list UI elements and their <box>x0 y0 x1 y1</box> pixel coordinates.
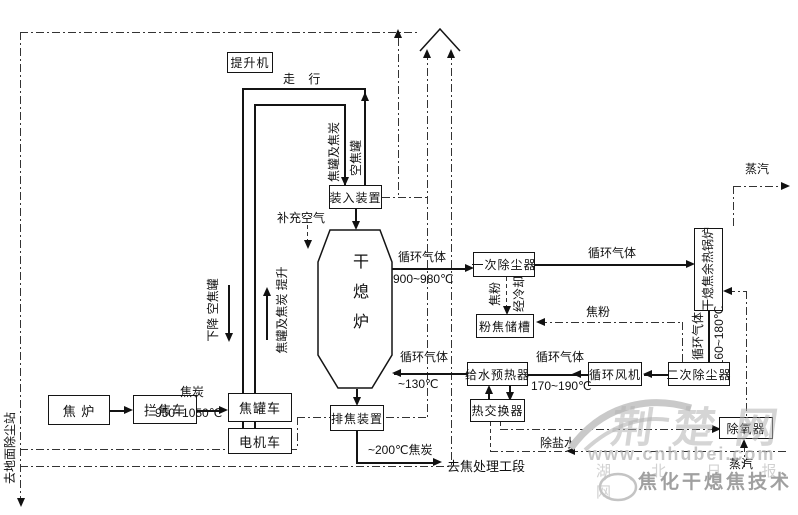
tank-and-coke-label: 焦罐及焦炭 <box>327 120 341 184</box>
rail-right-outer <box>364 88 366 185</box>
dry-quenching-furnace-label: 干熄炉 <box>346 253 370 363</box>
coke-label: 焦炭 <box>180 383 204 400</box>
coke-powder-v-label: 焦粉 <box>488 280 502 308</box>
coke-tank-car-box: 焦罐车 <box>228 393 292 422</box>
discharge-dust-line-left-v <box>297 417 298 449</box>
coke-discharge-device-label: 排焦装置 <box>331 410 383 427</box>
travel-rail-outer <box>242 88 365 90</box>
coke-tank-car-label: 焦罐车 <box>239 398 281 417</box>
arrow-up-stack-right <box>447 49 455 58</box>
steam-out-v <box>733 186 734 228</box>
arrow-toward-preheater <box>572 370 581 378</box>
charging-device-label: 装入装置 <box>330 189 382 206</box>
supplementary-air-label: 补充空气 <box>277 209 325 226</box>
coke-powder-h-label: 焦粉 <box>586 303 610 320</box>
feedwater-preheater-box: 给水预热器 <box>467 362 528 386</box>
stack-line-right <box>451 52 452 466</box>
discharge-dust-line-left-h <box>297 417 330 418</box>
empty-tank-label: 空焦罐 <box>349 138 363 178</box>
preheater-to-furnace-line <box>394 373 467 375</box>
boundary-line-top <box>20 32 420 33</box>
circulating-gas-label-5: 循环气体 <box>400 348 448 365</box>
demin-water-riser <box>490 422 491 451</box>
furnace-to-primary-line <box>392 268 469 270</box>
dust-line-bottom-long <box>20 466 451 467</box>
primary-to-boiler-line <box>535 264 690 266</box>
descend-indicator-line <box>228 285 230 335</box>
coke-oven-box: 焦 炉 <box>48 395 110 425</box>
travel-rail-inner <box>254 104 345 106</box>
watermark-caption: 焦化干熄焦技术 <box>638 467 792 494</box>
circulation-fan-box: 循环风机 <box>588 362 642 386</box>
feedwater-preheater-label: 给水预热器 <box>465 366 530 383</box>
lift-indicator-arrow <box>263 287 271 296</box>
arrow-up-empty-tank <box>361 92 369 101</box>
charging-device-box: 装入装置 <box>329 185 382 209</box>
charging-dust-line-v <box>398 38 399 197</box>
steam-out-h <box>733 186 785 187</box>
descend-empty-tank-label: 下降 空焦罐 <box>206 270 220 350</box>
after-cooling-label: 经冷却 <box>512 274 526 314</box>
coke-temp-label: 950~1050℃ <box>155 406 222 420</box>
rail-left-inner <box>254 104 256 393</box>
to-ground-dust-station-label: 去地面除尘站 <box>3 408 17 488</box>
electric-locomotive-label: 电机车 <box>239 432 281 451</box>
coke-oven-label: 焦 炉 <box>63 401 96 420</box>
primary-dust-collector-label: 一次除尘器 <box>472 256 537 273</box>
boundary-line-left <box>20 32 21 500</box>
arrow-steam-out <box>781 182 790 190</box>
lift-tank-coke-label: 焦罐及焦炭 提升 <box>275 258 289 362</box>
hoist-label: 提升机 <box>230 54 269 71</box>
powder-from-secondary-h <box>539 322 682 323</box>
steam-top-label: 蒸汽 <box>745 160 769 177</box>
arrow-up-stack-left <box>423 49 431 58</box>
hoist-box: 提升机 <box>227 52 273 73</box>
charging-dust-line-h <box>382 197 427 198</box>
arrow-to-guide-car <box>124 406 133 414</box>
supplementary-air-arrow <box>304 240 312 249</box>
circulating-gas-label-2: 循环气体 <box>588 244 636 261</box>
gas-temp-return-label: ~130℃ <box>398 377 439 391</box>
cdq-process-flow-diagram: 去地面除尘站 焦 炉 拦焦车 焦炭 950~1050℃ 焦罐车 电机车 提升机 … <box>0 0 798 515</box>
circulating-gas-label-4: 循环气体 <box>536 348 584 365</box>
electric-locomotive-box: 电机车 <box>228 428 292 454</box>
arrow-powder-into-tank <box>536 318 545 326</box>
travel-label: 走 行 <box>283 70 325 87</box>
discharge-dust-line-right <box>386 417 427 418</box>
heat-exchanger-label: 热交换器 <box>471 402 523 419</box>
coke-out-label: ~200℃焦炭 <box>368 441 433 458</box>
arrow-to-coke-processing <box>433 458 442 466</box>
coke-discharge-device-box: 排焦装置 <box>330 405 384 431</box>
watermark-logo-icon <box>596 468 640 504</box>
descend-indicator-arrow <box>225 333 233 342</box>
arrow-up-into-preheater <box>485 385 493 394</box>
hx-down-stub <box>500 422 501 429</box>
arrow-into-boiler-side <box>723 287 732 295</box>
arrow-up-boundary <box>394 29 402 38</box>
arrow-into-fan <box>643 370 652 378</box>
secondary-dust-collector-box: 二次除尘器 <box>668 362 730 386</box>
discharge-out-v <box>356 431 358 462</box>
waste-heat-boiler-label: 干熄焦余热锅炉 <box>701 219 715 319</box>
secondary-dust-collector-label: 二次除尘器 <box>667 366 732 383</box>
rail-right-inner <box>344 104 346 185</box>
to-coke-processing-label: 去焦处理工段 <box>447 456 525 475</box>
watermark-url: www.cnhubei.com <box>588 444 775 465</box>
discharge-out-h <box>356 462 437 464</box>
arrow-into-furnace-side <box>392 369 401 377</box>
gas-temp-hot-label: 900~980℃ <box>393 272 454 286</box>
circulating-gas-label-1: 循环气体 <box>398 248 446 265</box>
lift-indicator-line <box>266 290 268 340</box>
powder-from-secondary-v <box>682 322 683 362</box>
arrow-to-ground-dust-station <box>17 498 25 507</box>
heat-exchanger-box: 热交换器 <box>470 399 525 422</box>
coke-powder-tank-label: 粉焦储槽 <box>479 318 531 335</box>
rail-left-outer <box>242 88 244 393</box>
coke-powder-tank-box: 粉焦储槽 <box>476 314 534 338</box>
circulation-fan-label: 循环风机 <box>589 366 641 383</box>
